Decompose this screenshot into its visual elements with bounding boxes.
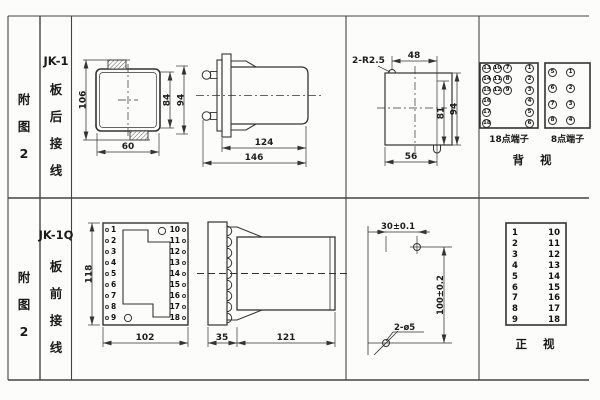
terminal-8-circle: 2 <box>566 84 575 93</box>
terminal-dot <box>105 283 109 287</box>
dim-124: 124 <box>255 138 274 148</box>
dim-146: 146 <box>245 153 264 163</box>
row1-model-label: JK-1 <box>40 54 72 68</box>
terminal-18-circle: 16 <box>482 97 491 106</box>
terminal-8-circle: 5 <box>548 68 557 77</box>
row2-wiring-label: 板 前 接 线 <box>41 253 71 361</box>
terminal-number: 16 <box>170 291 180 300</box>
terminal-18-label: 18点端子 <box>478 132 540 145</box>
dim-radius: 2-R2.5 <box>352 56 385 66</box>
terminal-18-circle: 17 <box>482 108 491 117</box>
dim-94: 94 <box>177 94 187 107</box>
terminal-18-circle: 10 <box>493 64 502 73</box>
jk1-panel-cutout-drawing: 2-R2.5 48 81 94 56 <box>352 51 461 166</box>
dim-100: 100±0.2 <box>436 275 446 315</box>
row2-figure-label: 附 图 2 <box>10 264 38 345</box>
terminal-8-label: 8点端子 <box>541 132 594 145</box>
terminal-dot <box>182 283 186 287</box>
terminal-number: 4 <box>111 258 116 267</box>
terminal-18-circle: 4 <box>525 97 534 106</box>
dim-56: 56 <box>405 152 418 162</box>
terminal-dot <box>105 239 109 243</box>
terminal-dot <box>105 316 109 320</box>
dim-holes: 2-ø5 <box>394 323 415 333</box>
table-cell: 2 <box>512 239 518 250</box>
terminal-number: 5 <box>111 269 116 278</box>
table-cell: 18 <box>544 315 560 326</box>
terminal-18-circle: 13 <box>482 64 491 73</box>
terminal-18-circle: 18 <box>482 119 491 128</box>
table-grid <box>8 16 589 380</box>
dim-102: 102 <box>136 333 155 343</box>
table-cell: 14 <box>544 272 560 283</box>
table-cell: 3 <box>512 250 518 261</box>
terminal-number: 6 <box>111 280 116 289</box>
terminal-number: 2 <box>111 236 116 245</box>
terminal-18-circle: 1 <box>525 64 534 73</box>
jk1q-drilling-drawing: 30±0.1 100±0.2 2-ø5 <box>368 222 452 355</box>
rear-view-label: 背 视 <box>500 152 570 168</box>
dim-118: 118 <box>85 265 95 284</box>
dim-30: 30±0.1 <box>381 222 415 232</box>
terminal-8-circle: 7 <box>548 100 557 109</box>
terminal-dot <box>105 272 109 276</box>
row1-figure-label: 附 图 2 <box>10 86 38 167</box>
table-cell: 17 <box>544 304 560 315</box>
terminal-dot <box>105 228 109 232</box>
jk1-side-view-drawing: 124 146 <box>196 54 322 167</box>
terminal-8-circle: 4 <box>566 116 575 125</box>
table-cell: 9 <box>512 315 518 326</box>
terminal-number: 17 <box>170 302 180 311</box>
terminal-18-circle: 12 <box>493 86 502 95</box>
terminal-18-circle: 14 <box>482 75 491 84</box>
terminal-number: 12 <box>170 247 180 256</box>
jk1-rear-view-drawing: 106 84 94 60 <box>79 60 189 156</box>
dim-106: 106 <box>79 91 89 110</box>
terminal-dot <box>182 239 186 243</box>
front-view-left-terminals: 1 2 3 4 5 6 7 8 9 <box>105 225 116 322</box>
dim-94b: 94 <box>450 103 460 116</box>
manual-page: 106 84 94 60 124 146 <box>0 0 600 400</box>
front-view-right-terminals: 10 11 12 13 14 15 16 17 18 <box>163 225 186 322</box>
terminal-number: 3 <box>111 247 116 256</box>
terminal-dot <box>182 294 186 298</box>
terminal-8-circle: 1 <box>566 68 575 77</box>
terminal-number: 9 <box>111 313 116 322</box>
terminal-dot <box>182 228 186 232</box>
terminal-dot <box>182 305 186 309</box>
dim-48: 48 <box>408 51 421 61</box>
terminal-number: 7 <box>111 291 116 300</box>
terminal-dot <box>182 316 186 320</box>
table-cell: 7 <box>512 293 518 304</box>
table-cell: 8 <box>512 304 518 315</box>
terminal-8-circle: 6 <box>548 84 557 93</box>
terminal-number: 11 <box>170 236 180 245</box>
terminal-18-circle: 3 <box>525 86 534 95</box>
terminal-18-circle: 5 <box>525 108 534 117</box>
table-cell: 1 <box>512 228 518 239</box>
dim-81: 81 <box>437 107 447 120</box>
table-cell: 11 <box>544 239 560 250</box>
table-cell: 5 <box>512 272 518 283</box>
terminal-number: 13 <box>170 258 180 267</box>
terminal-18-circle: 11 <box>493 75 502 84</box>
dim-121: 121 <box>277 333 296 343</box>
terminal-18-circle: 7 <box>503 64 512 73</box>
terminal-dot <box>105 305 109 309</box>
dim-35: 35 <box>216 333 229 343</box>
terminal-dot <box>105 250 109 254</box>
terminal-18-circle: 8 <box>503 75 512 84</box>
terminal-table-right-column: 10 11 12 13 14 15 16 17 18 <box>544 228 560 326</box>
table-cell: 15 <box>544 283 560 294</box>
terminal-dot <box>182 250 186 254</box>
terminal-18-circle: 6 <box>525 119 534 128</box>
terminal-number: 1 <box>111 225 116 234</box>
terminal-18-circle: 9 <box>503 86 512 95</box>
terminal-number: 18 <box>170 313 180 322</box>
terminal-number: 14 <box>170 269 180 278</box>
terminal-18-circle: 2 <box>525 75 534 84</box>
table-cell: 12 <box>544 250 560 261</box>
table-cell: 10 <box>544 228 560 239</box>
terminal-18-circle: 15 <box>482 86 491 95</box>
terminal-dot <box>105 294 109 298</box>
terminal-dot <box>105 261 109 265</box>
terminal-8-circle: 8 <box>548 116 557 125</box>
table-cell: 16 <box>544 293 560 304</box>
dim-60: 60 <box>122 142 135 152</box>
terminal-dot <box>182 261 186 265</box>
table-cell: 13 <box>544 261 560 272</box>
table-cell: 4 <box>512 261 518 272</box>
terminal-number: 8 <box>111 302 116 311</box>
row2-model-label: JK-1Q <box>38 228 74 242</box>
jk1q-side-view-drawing: 35 121 <box>197 222 347 347</box>
terminal-number: 15 <box>170 280 180 289</box>
dim-84: 84 <box>163 94 173 107</box>
terminal-dot <box>182 272 186 276</box>
terminal-8-circle: 3 <box>566 100 575 109</box>
terminal-table-left-column: 1 2 3 4 5 6 7 8 9 <box>512 228 518 326</box>
front-view-label: 正 视 <box>503 336 573 352</box>
table-cell: 6 <box>512 283 518 294</box>
row1-wiring-label: 板 后 接 线 <box>41 76 71 184</box>
terminal-number: 10 <box>170 225 180 234</box>
